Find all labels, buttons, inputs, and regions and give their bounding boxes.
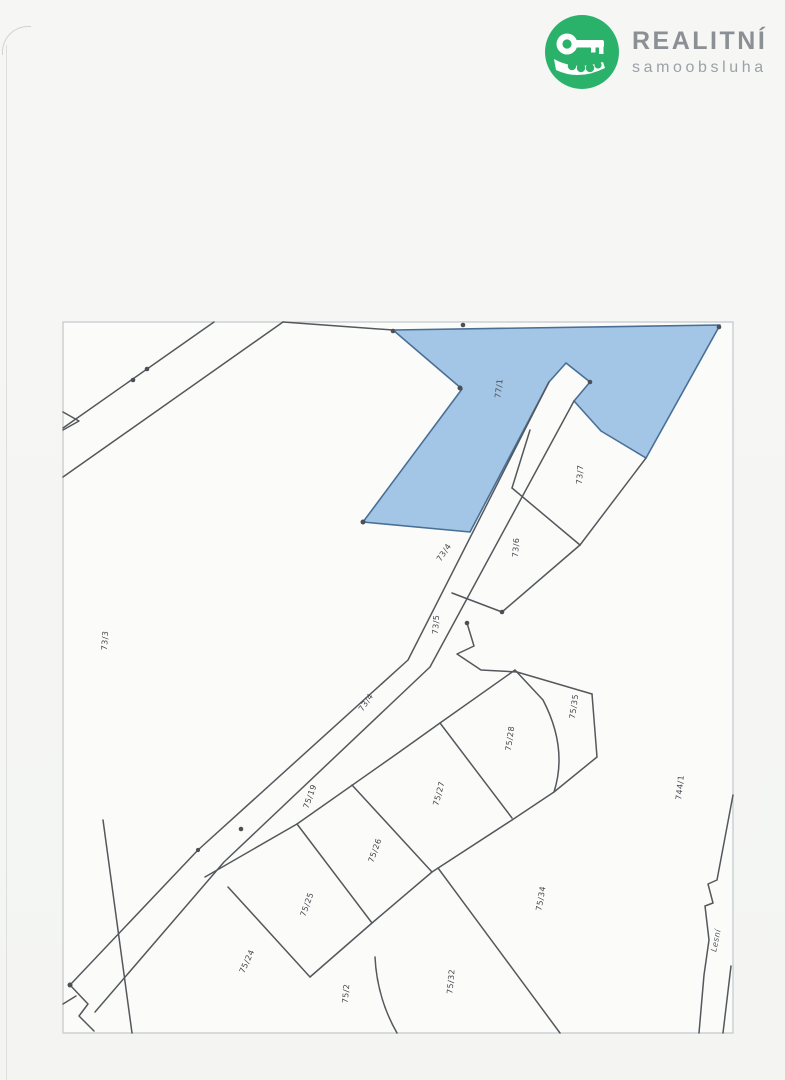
scanned-page: REALITNÍ samoobsluha (0, 0, 785, 1080)
cadastral-map (0, 0, 785, 1080)
